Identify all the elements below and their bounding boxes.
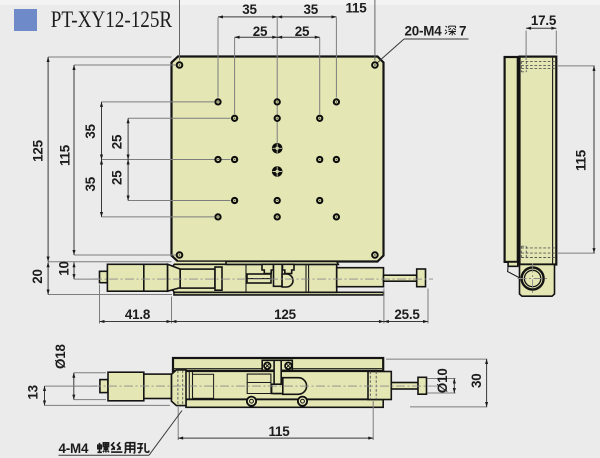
- svg-text:115: 115: [345, 1, 367, 16]
- svg-text:35: 35: [83, 124, 98, 139]
- svg-text:35: 35: [83, 176, 98, 191]
- svg-text:20: 20: [30, 269, 45, 284]
- svg-text:PT-XY12-125R: PT-XY12-125R: [51, 7, 173, 32]
- svg-text:25.5: 25.5: [394, 307, 420, 322]
- svg-text:30: 30: [469, 373, 484, 388]
- svg-text:41.8: 41.8: [125, 307, 151, 322]
- svg-text:115: 115: [57, 144, 72, 166]
- svg-text:25: 25: [253, 24, 268, 39]
- svg-text:115: 115: [268, 424, 290, 439]
- svg-text:7: 7: [459, 24, 466, 39]
- svg-text:115: 115: [574, 149, 589, 171]
- svg-text:10: 10: [57, 261, 72, 276]
- svg-text:Ø18: Ø18: [53, 343, 68, 368]
- svg-text:125: 125: [31, 139, 46, 161]
- svg-text:13: 13: [26, 385, 41, 400]
- svg-text:Ø10: Ø10: [435, 368, 450, 393]
- svg-text:35: 35: [304, 2, 319, 17]
- svg-text:17.5: 17.5: [531, 13, 557, 28]
- svg-text:4-M4: 4-M4: [59, 441, 89, 456]
- svg-text:25: 25: [110, 170, 125, 185]
- svg-text:25: 25: [110, 134, 125, 149]
- svg-text:25: 25: [295, 24, 310, 39]
- svg-text:125: 125: [274, 307, 296, 322]
- svg-text:35: 35: [242, 2, 257, 17]
- svg-text:20-M4: 20-M4: [405, 24, 443, 39]
